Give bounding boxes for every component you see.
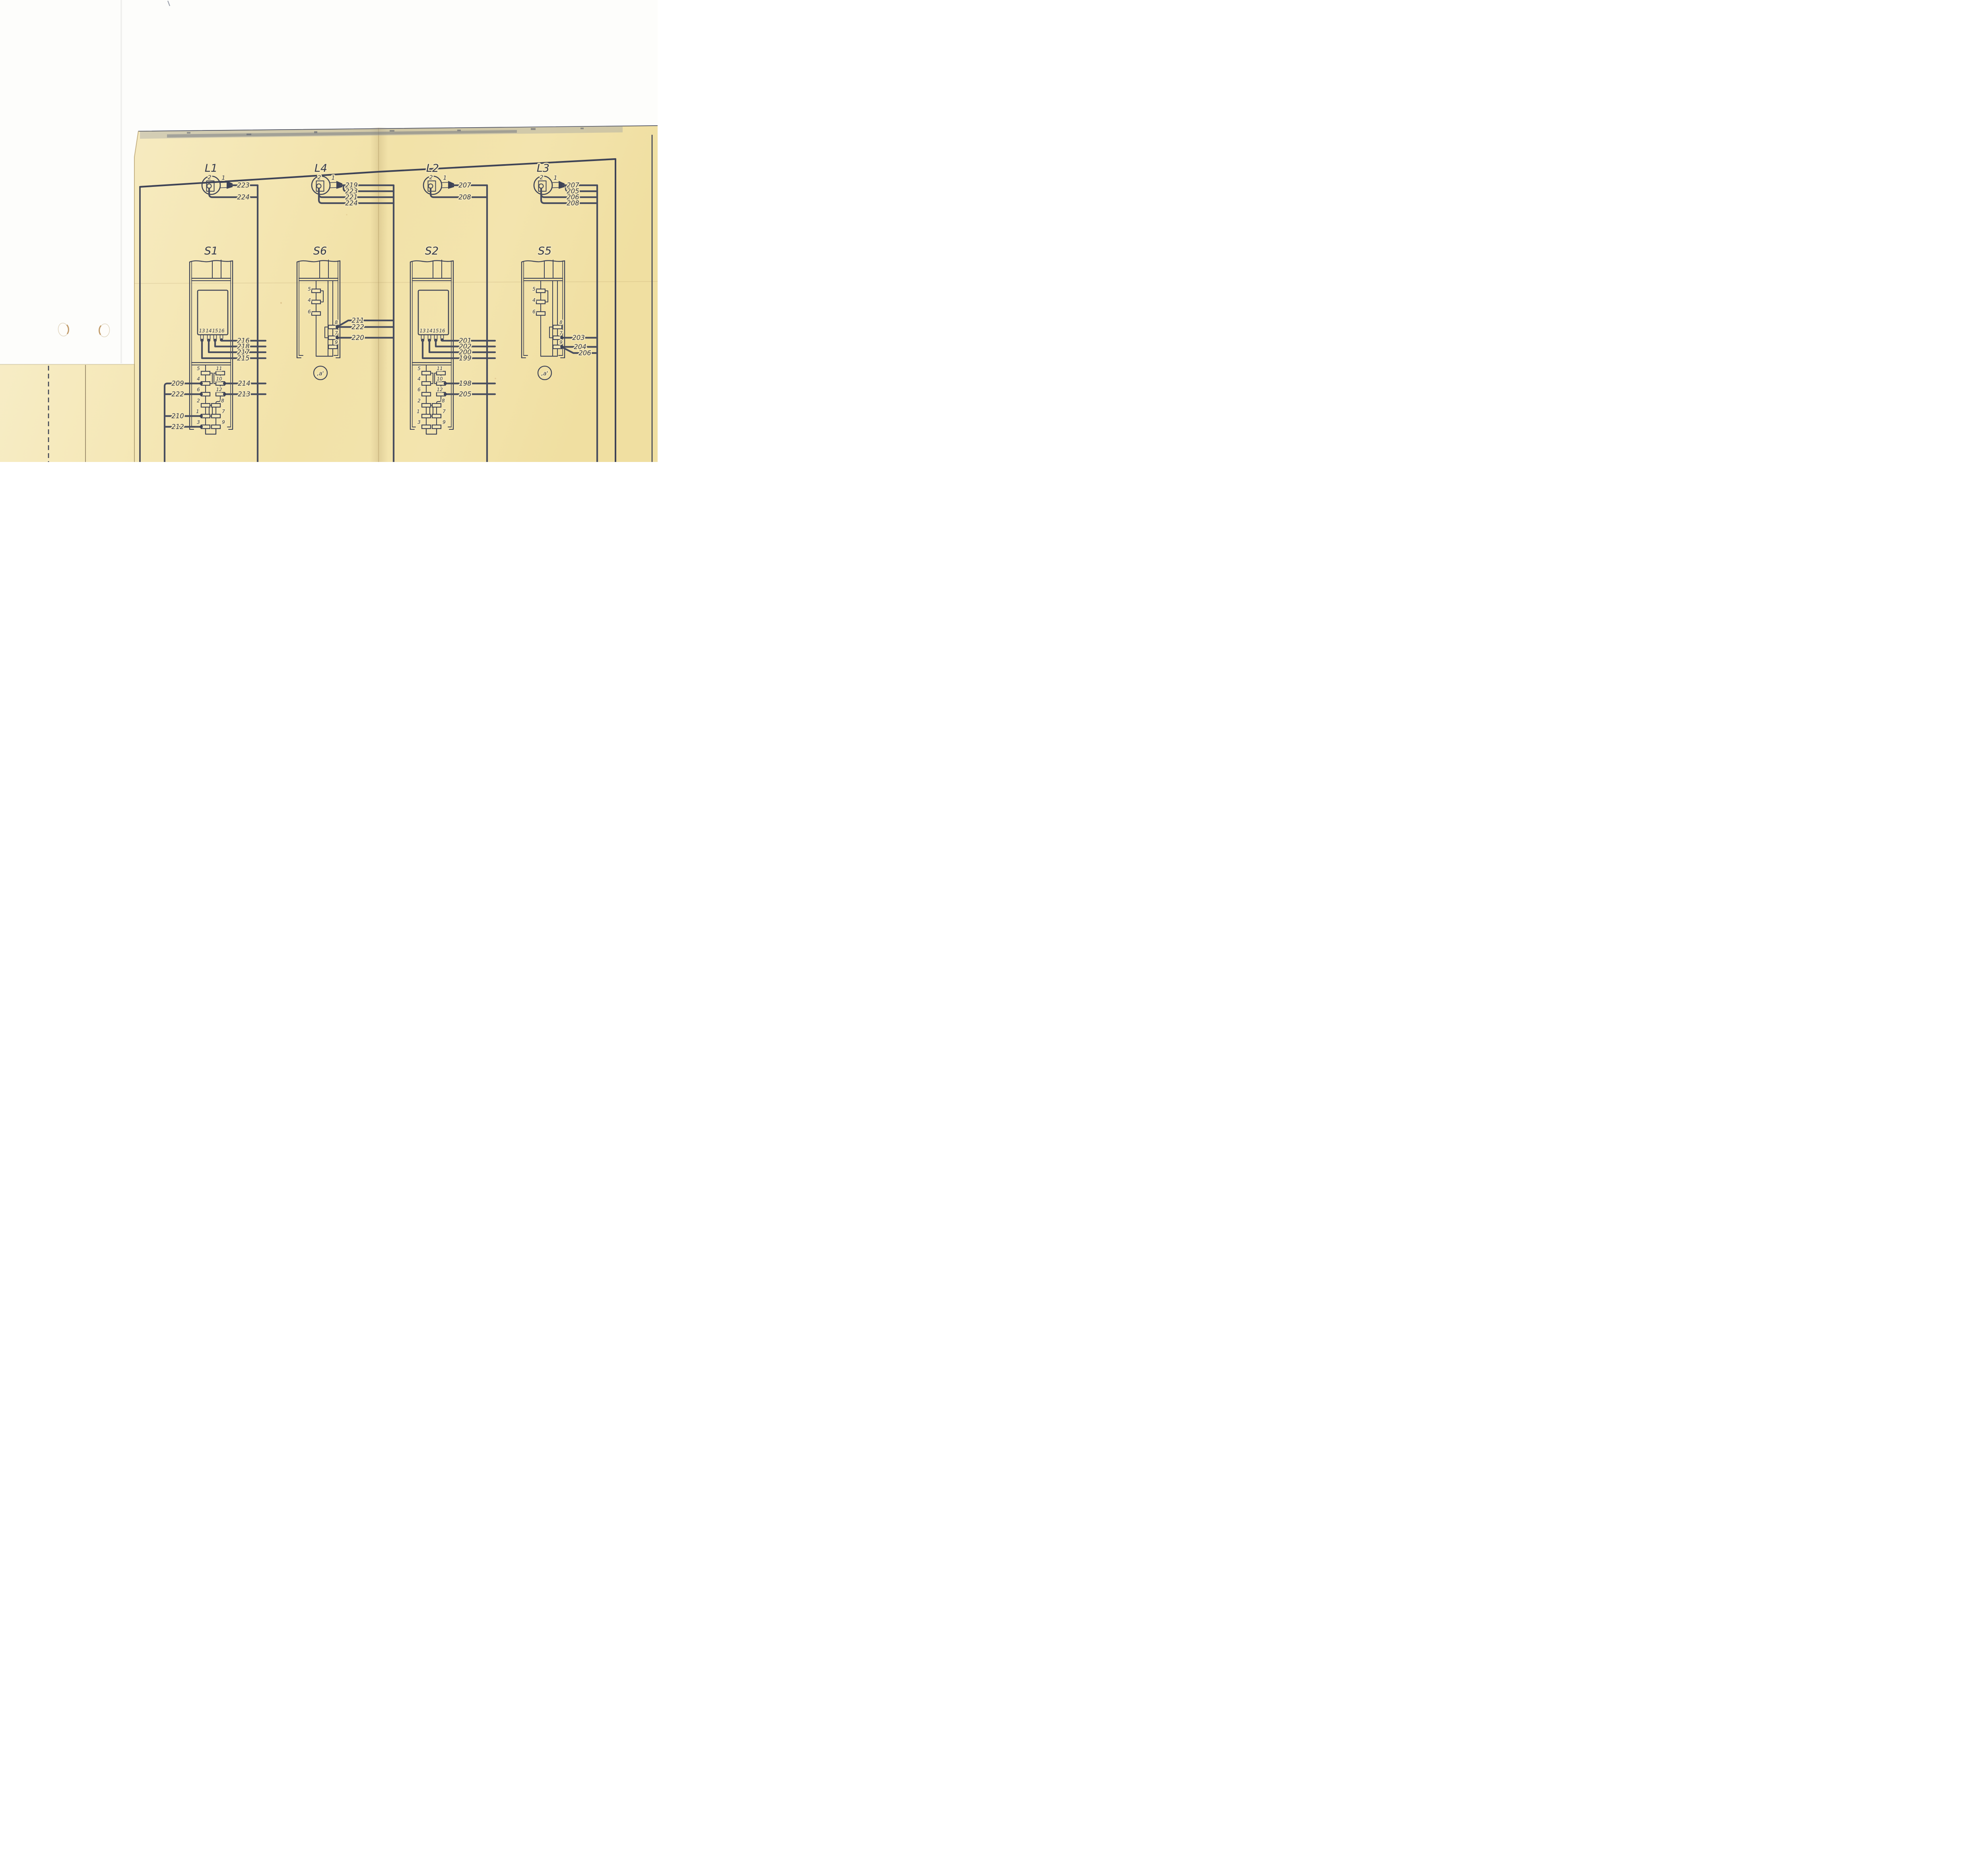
S5-pin-9: 9	[559, 340, 563, 345]
S1-pin-10: 10	[216, 376, 222, 382]
wire-198-label: 198	[459, 380, 472, 387]
contact-1	[422, 414, 431, 418]
paper-background	[0, 0, 658, 465]
L1-terminal-2: 2	[208, 175, 211, 181]
L2-terminal-1: 1	[443, 175, 447, 181]
L3-terminal-1: 1	[553, 175, 557, 181]
S6-annotation-a: ,a'	[317, 371, 324, 377]
wire-208-label: 208	[458, 194, 471, 201]
wire-213-label: 213	[238, 390, 250, 398]
S5-pin-8: 8	[559, 320, 563, 325]
contact-6	[536, 312, 545, 315]
contact-3	[422, 425, 431, 429]
contact-9	[328, 345, 337, 349]
lamp-L1-label: L1	[205, 162, 217, 175]
L3-terminal-2: 2	[540, 175, 543, 181]
S1-pin-2: 2	[197, 398, 200, 404]
S2-pin-16: 16	[439, 328, 445, 334]
L2-terminal-2: 2	[429, 175, 433, 181]
S5-pin-6: 6	[532, 309, 536, 314]
plug-line	[330, 182, 337, 183]
plug-line	[330, 188, 337, 188]
S2-pin-2: 2	[417, 398, 421, 404]
contact-7	[212, 414, 220, 418]
S1-pin-8: 8	[221, 398, 224, 404]
punch-hole-left	[57, 322, 69, 337]
S1-pin-4: 4	[197, 376, 200, 382]
switch-S6-label: S6	[313, 245, 327, 257]
contact-8	[553, 325, 562, 329]
S6-pin-9: 9	[335, 340, 338, 345]
age-spot	[280, 302, 282, 304]
contact-2	[422, 404, 431, 407]
wire-208-label: 208	[567, 200, 579, 207]
contact-5	[536, 289, 545, 293]
L4-terminal-1: 1	[331, 175, 335, 181]
S1-pin-14: 14	[206, 328, 212, 334]
L1-terminal-1: 1	[221, 175, 225, 181]
plug-line	[220, 188, 227, 188]
S6-pin-8: 8	[335, 320, 338, 325]
wire-220-label: 220	[351, 334, 364, 342]
S2-pin-8: 8	[442, 398, 445, 404]
wire-203-label: 203	[572, 334, 585, 342]
scan-bottom-edge	[0, 462, 658, 465]
switch-S5-label: S5	[538, 245, 551, 257]
wire-199-label: 199	[459, 355, 472, 362]
wire-209-label: 209	[171, 380, 184, 387]
S1-pin-13: 13	[199, 328, 205, 334]
S2-pin-7: 7	[443, 409, 446, 414]
contact-2	[201, 404, 210, 407]
contact-5	[422, 371, 431, 375]
S6-pin-5: 5	[308, 286, 311, 292]
contact-4	[536, 300, 545, 304]
S1-pin-5: 5	[197, 366, 200, 371]
wire-222-label: 222	[171, 390, 184, 398]
S6-pin-4: 4	[308, 297, 311, 303]
S6-pin-7: 7	[335, 330, 338, 336]
S2-pin-13: 13	[419, 328, 425, 334]
S2-pin-3: 3	[417, 419, 421, 425]
wire-222-label: 222	[351, 323, 364, 331]
contact-11	[437, 371, 445, 375]
contact-4	[312, 300, 320, 304]
age-spot	[495, 378, 496, 379]
contact-4	[422, 382, 431, 385]
S2-pin-5: 5	[417, 366, 421, 371]
switch-S2-label: S2	[425, 245, 439, 257]
S1-pin-9: 9	[222, 419, 225, 425]
contact-6	[422, 392, 431, 396]
S6-pin-6: 6	[308, 309, 311, 314]
contact-9	[432, 425, 441, 429]
contact-6	[312, 312, 320, 315]
S1-pin-1: 1	[196, 409, 199, 414]
S2-pin-14: 14	[426, 328, 432, 334]
plug-line	[552, 188, 559, 188]
S1-pin-7: 7	[222, 409, 225, 414]
plug-line	[441, 188, 449, 188]
wire-214-label: 214	[238, 380, 250, 387]
lamp-L2-label: L2	[426, 162, 439, 175]
contact-8	[432, 404, 441, 407]
lamp-L4-label: L4	[315, 162, 327, 175]
schematic-scan: L1 L4 L2 L3 2 1 2 1 2 1 2 1 223 224 219 …	[0, 0, 658, 465]
wire-224-label: 224	[237, 194, 250, 201]
plug-line	[441, 182, 449, 183]
wire-205-label: 205	[459, 390, 472, 398]
S2-pin-11: 11	[437, 366, 443, 371]
plug-line	[552, 182, 559, 183]
contact-7	[432, 414, 441, 418]
contact-5	[201, 371, 210, 375]
wire-207-label: 207	[458, 182, 471, 189]
S1-pin-15: 15	[212, 328, 218, 334]
S2-pin-1: 1	[417, 409, 420, 414]
S1-pin-3: 3	[197, 419, 200, 425]
wire-206-label: 206	[579, 349, 591, 357]
S1-pin-16: 16	[218, 328, 225, 334]
S5-pin-7: 7	[559, 330, 563, 336]
contact-9	[212, 425, 220, 429]
wire-212-label: 212	[171, 423, 184, 431]
age-spot	[346, 214, 347, 215]
wire-215-label: 215	[237, 355, 250, 362]
contact-11	[216, 371, 225, 375]
wire-223-label: 223	[237, 182, 250, 189]
wire-224-label: 224	[345, 200, 358, 207]
S5-pin-5: 5	[532, 286, 536, 292]
wire-210-label: 210	[171, 412, 184, 420]
S2-pin-15: 15	[433, 328, 439, 334]
S1-pin-11: 11	[216, 366, 222, 371]
S1-pin-12: 12	[216, 387, 222, 392]
S5-pin-4: 4	[532, 297, 536, 303]
lamp-L3-label: L3	[537, 162, 549, 175]
L4-terminal-2: 2	[317, 175, 321, 181]
S2-pin-6: 6	[417, 387, 421, 392]
contact-5	[312, 289, 320, 293]
S2-pin-9: 9	[443, 419, 446, 425]
contact-8	[212, 404, 220, 407]
S5-annotation-a: ,a'	[542, 371, 548, 377]
switch-S1-label: S1	[204, 245, 218, 257]
scanned-schematic-page: L1 L4 L2 L3 2 1 2 1 2 1 2 1 223 224 219 …	[0, 0, 658, 465]
S2-pin-12: 12	[437, 387, 443, 392]
stray-mark	[168, 1, 170, 6]
S2-pin-4: 4	[417, 376, 421, 382]
punch-hole-right	[99, 323, 110, 337]
S2-pin-10: 10	[437, 376, 443, 382]
plug-line	[220, 182, 227, 183]
S1-pin-6: 6	[197, 387, 200, 392]
yellow-paper-sheet	[0, 126, 658, 465]
